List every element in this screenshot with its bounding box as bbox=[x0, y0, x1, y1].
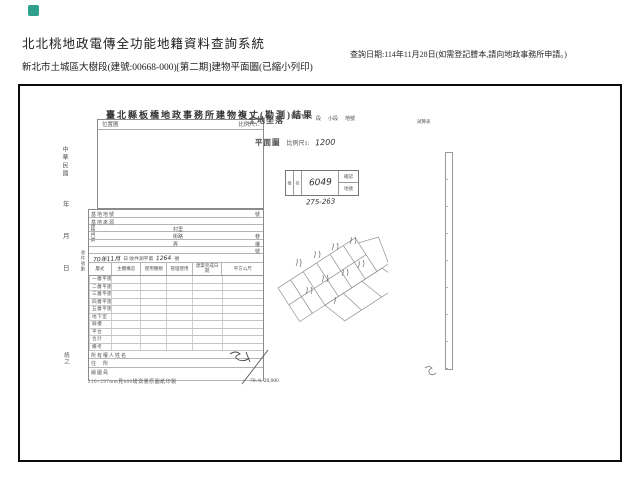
system-title: 北北桃地政電傳全功能地籍資料查詢系統 bbox=[22, 33, 265, 52]
floor-row-total: 合計 bbox=[89, 336, 263, 344]
land-label: 土地坐落 bbox=[248, 115, 284, 126]
site-number-suffix: 號 bbox=[255, 211, 260, 218]
header-completion-date: 建築完成日期 bbox=[192, 263, 222, 275]
floor-row-basement: 地下室 bbox=[89, 314, 263, 322]
header-use-type: 使用種類 bbox=[140, 263, 166, 275]
floor-row-label: 騎樓 bbox=[89, 321, 111, 328]
site-source-row: 基地來源 bbox=[89, 218, 263, 225]
address-street-label: 街路 bbox=[173, 233, 183, 240]
address-row-street: 街路 巷 bbox=[89, 232, 263, 240]
floor-row-label: 四層平圖式 bbox=[89, 299, 111, 306]
stamp-below-handwriting: 275-263 bbox=[306, 197, 336, 206]
handwritten-signature bbox=[216, 344, 286, 386]
floor-row-terrace: 平台 bbox=[89, 329, 263, 337]
floor-row-label: 合計 bbox=[89, 336, 111, 343]
header-area-sqm: 平方公尺 bbox=[221, 263, 263, 275]
margin-receipt-label: 收件號數 bbox=[80, 250, 86, 272]
floor-row-label: 三層平圖式 bbox=[89, 291, 111, 298]
floor-row-label: 五層平圖式 bbox=[89, 306, 111, 313]
floor-row-arcade: 騎樓 bbox=[89, 321, 263, 329]
margin-month-label: 月 bbox=[63, 230, 70, 240]
stamp-left-cell-2: 核 bbox=[294, 171, 302, 195]
screen: 北北桃地政電傳全功能地籍資料查詢系統 查詢日期:114年11月28日(如需登記謄… bbox=[0, 0, 640, 480]
margin-bottom-label: 統之 bbox=[62, 352, 70, 365]
owner-name-label: 所有權人姓名 bbox=[91, 352, 127, 359]
stamp-right-top: 確認 bbox=[339, 171, 358, 183]
margin-year-label: 年 bbox=[63, 198, 70, 208]
stamp-left-cell-1: 檢 bbox=[286, 171, 294, 195]
strip-tick-marks bbox=[446, 153, 448, 369]
land-right-note: 試算表 bbox=[417, 119, 431, 125]
strip-note-scribble bbox=[422, 364, 440, 378]
survey-number-handwriting: 1264 bbox=[156, 254, 172, 262]
land-col-lot-number: 地號 bbox=[345, 115, 355, 122]
floor-row-1: 一層平圖式 bbox=[89, 276, 263, 284]
header-structure: 主體構造 bbox=[111, 263, 141, 275]
boundary-strip bbox=[445, 152, 453, 370]
floor-row-label: 一層平圖式 bbox=[89, 276, 111, 283]
land-col-section: 段 bbox=[316, 115, 321, 122]
checker-stamp-box: 檢 核 6049 確認 地號 bbox=[285, 170, 359, 196]
header-layer: 層式 bbox=[89, 263, 111, 275]
plan-scale-line: 平面圖 比例尺1: 1200 bbox=[255, 137, 336, 148]
survey-printed-text: 日 收件測字第 bbox=[123, 255, 153, 262]
site-number-row: 基地地號 號 bbox=[89, 210, 263, 218]
floor-row-2: 二層平圖式 bbox=[89, 284, 263, 292]
margin-era-label: 中華民國 bbox=[60, 146, 69, 178]
plan-label: 平面圖 bbox=[255, 137, 281, 148]
survey-date-row: 70年11月 日 收件測字第 1264 號 bbox=[89, 254, 263, 263]
floor-row-5: 五層平圖式 bbox=[89, 306, 263, 314]
site-number-label: 基地地號 bbox=[91, 211, 115, 218]
plan-scale-handwriting: 1200 bbox=[315, 138, 336, 148]
floor-row-label: 地下室 bbox=[89, 314, 111, 321]
survey-date-handwriting: 70年11月 bbox=[93, 253, 121, 263]
measure-header-row: 層式 主體構造 使用種類 管理使用 建築完成日期 平方公尺 bbox=[89, 263, 263, 276]
floor-row-3: 三層平圖式 bbox=[89, 291, 263, 299]
scanned-document: 臺北縣板橋地政事務所建物複丈(勘測)結果 位置圖 比例尺1: 中華民國 年 月 … bbox=[18, 84, 622, 462]
app-icon bbox=[28, 5, 39, 16]
location-map-box: 位置圖 比例尺1: bbox=[97, 119, 264, 209]
draftsman-label: 繪圖員 bbox=[91, 369, 109, 376]
plan-scale-label: 比例尺1: bbox=[287, 138, 310, 147]
address-row-village: 村里 bbox=[89, 225, 263, 232]
stamp-number-handwriting: 6049 bbox=[308, 178, 331, 189]
floor-row-label: 二層平圖式 bbox=[89, 284, 111, 291]
floor-row-4: 四層平圖式 bbox=[89, 299, 263, 307]
land-location-header: 土地坐落 鄉鎮市區 段 小段 地號 bbox=[248, 115, 355, 126]
survey-number-suffix: 號 bbox=[175, 255, 180, 262]
document-subtitle: 新北市土城區大樹段(建號:00668-000)[第二期]建物平面圖(已縮小列印) bbox=[22, 59, 313, 73]
stamp-right-bottom: 地號 bbox=[339, 183, 358, 195]
location-map-label: 位置圖 bbox=[102, 120, 119, 129]
margin-day-label: 日 bbox=[63, 262, 70, 272]
query-date-text: 查詢日期:114年11月28日(如需登記謄本,請向地政事務所申請。) bbox=[350, 49, 567, 60]
floor-row-label: 平台 bbox=[89, 329, 111, 336]
land-col-district: 鄉鎮市區 bbox=[291, 115, 309, 120]
floor-plan-sketch bbox=[258, 224, 388, 336]
print-spec-note: 210×297mm見600磅測量原圖紙印製 bbox=[88, 378, 177, 385]
floor-row-label: 備考 bbox=[89, 344, 111, 351]
land-col-subsection: 小段 bbox=[328, 115, 338, 122]
header-management: 管理使用 bbox=[166, 263, 192, 275]
address-row-alley: 弄 樓 bbox=[89, 240, 263, 247]
owner-address-label: 住 所 bbox=[91, 360, 109, 367]
